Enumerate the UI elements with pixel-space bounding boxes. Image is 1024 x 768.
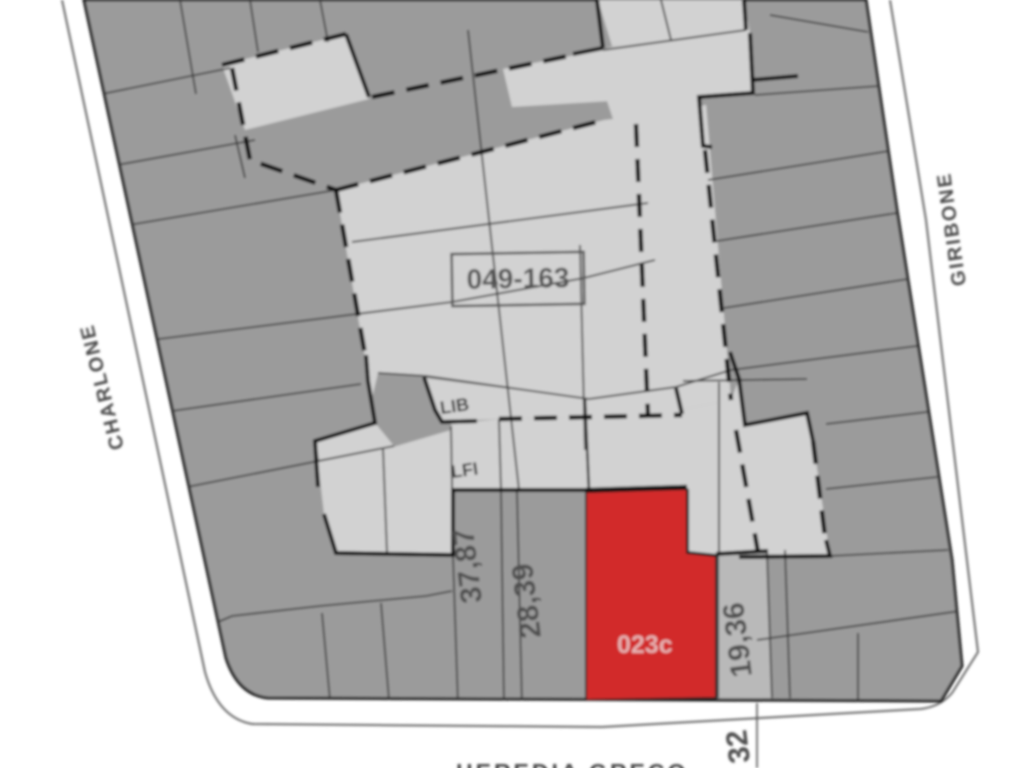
svg-text:049-163: 049-163 bbox=[466, 262, 569, 295]
svg-text:CHARLONE: CHARLONE bbox=[76, 321, 129, 452]
svg-text:023c: 023c bbox=[617, 631, 673, 659]
svg-text:LIB: LIB bbox=[439, 394, 471, 418]
svg-text:32: 32 bbox=[720, 728, 757, 765]
svg-text:GIRIBONE: GIRIBONE bbox=[933, 171, 971, 288]
svg-text:HEREDIA GRECO: HEREDIA GRECO bbox=[456, 759, 688, 768]
svg-text:LFI: LFI bbox=[450, 458, 480, 482]
